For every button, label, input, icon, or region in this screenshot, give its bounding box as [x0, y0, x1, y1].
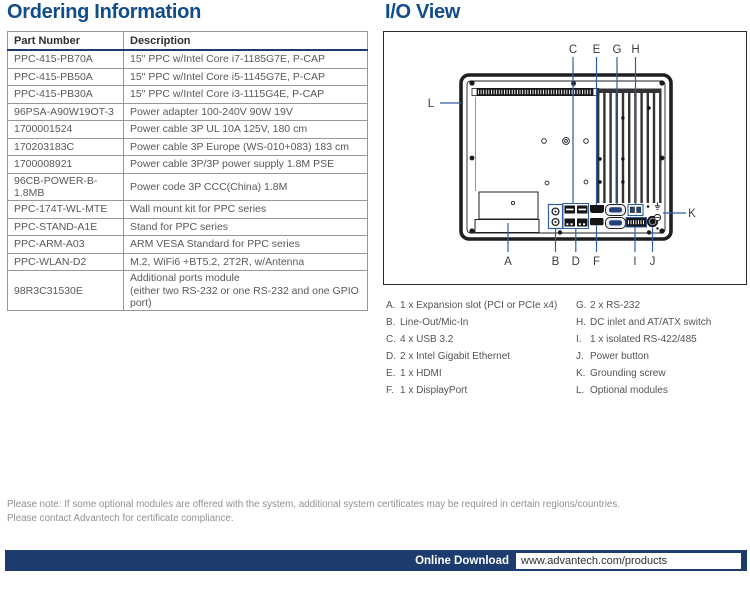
table-row: 98R3C31530EAdditional ports module (eith…	[8, 271, 368, 311]
part-number-cell: PPC-STAND-A1E	[8, 218, 124, 236]
compliance-note: Please note: If some optional modules ar…	[7, 498, 727, 525]
part-number-cell: PPC-ARM-A03	[8, 236, 124, 254]
rs422-485-port	[626, 218, 647, 228]
legend-item: C.4 x USB 3.2	[386, 331, 571, 348]
description-cell: Power cable 3P Europe (WS-010+083) 183 c…	[124, 138, 368, 156]
callout-letter-e: E	[593, 44, 601, 56]
part-number-cell: 98R3C31530E	[8, 271, 124, 311]
io-legend-right: G.2 x RS-232 H.DC inlet and AT/ATX switc…	[576, 297, 748, 399]
description-cell: 15" PPC w/Intel Core i3-1115G4E, P-CAP	[124, 86, 368, 104]
legend-item: I.1 x isolated RS-422/485	[576, 331, 748, 348]
ordering-information-heading: Ordering Information	[7, 1, 201, 24]
hdmi-port	[590, 205, 604, 213]
description-cell: Power cable 3P/3P power supply 1.8M PSE	[124, 156, 368, 174]
legend-item: H.DC inlet and AT/ATX switch	[576, 314, 748, 331]
legend-item: D.2 x Intel Gigabit Ethernet	[386, 348, 571, 365]
table-row: PPC-STAND-A1EStand for PPC series	[8, 218, 368, 236]
table-row: PPC-ARM-A03ARM VESA Standard for PPC ser…	[8, 236, 368, 254]
part-number-cell: 96CB-POWER-B-1.8MB	[8, 173, 124, 201]
description-cell: Wall mount kit for PPC series	[124, 201, 368, 219]
callout-letter-j: J	[650, 256, 656, 268]
table-header-row: Part Number Description	[8, 32, 368, 51]
part-number-cell: PPC-415-PB50A	[8, 68, 124, 86]
callout-letter-f: F	[593, 256, 600, 268]
col-header-part-number: Part Number	[8, 32, 124, 51]
io-view-heading: I/O View	[385, 1, 460, 24]
note-line-1: Please note: If some optional modules ar…	[7, 498, 727, 512]
legend-item: A.1 x Expansion slot (PCI or PCIe x4)	[386, 297, 571, 314]
note-line-2: Please contact Advantech for certificate…	[7, 512, 727, 526]
description-cell: ARM VESA Standard for PPC series	[124, 236, 368, 254]
part-number-cell: 170203183C	[8, 138, 124, 156]
expansion-slot	[475, 192, 539, 233]
rear-panel-diagram: C E G H A B D F I J L K	[383, 31, 747, 285]
callout-letter-l: L	[428, 98, 435, 110]
displayport-port	[590, 218, 604, 225]
callout-letter-b: B	[552, 256, 560, 268]
callout-letter-d: D	[572, 256, 580, 268]
online-download-label: Online Download	[415, 555, 509, 567]
dc-inlet-atx-switch	[628, 205, 643, 216]
io-view-panel: C E G H A B D F I J L K	[383, 31, 747, 285]
download-url-box[interactable]: www.advantech.com/products	[516, 553, 741, 569]
audio-jacks	[549, 205, 563, 229]
callout-letter-h: H	[631, 44, 639, 56]
table-row: PPC-415-PB30A15" PPC w/Intel Core i3-111…	[8, 86, 368, 104]
callout-letter-k: K	[688, 208, 696, 220]
table-row: PPC-174T-WL-MTEWall mount kit for PPC se…	[8, 201, 368, 219]
legend-item: J.Power button	[576, 348, 748, 365]
description-cell: Stand for PPC series	[124, 218, 368, 236]
description-cell: M.2, WiFi6 +BT5.2, 2T2R, w/Antenna	[124, 253, 368, 271]
legend-item: K.Grounding screw	[576, 365, 748, 382]
table-row: 1700008921Power cable 3P/3P power supply…	[8, 156, 368, 174]
part-number-cell: 96PSA-A90W19OT-3	[8, 103, 124, 121]
io-legend-left: A.1 x Expansion slot (PCI or PCIe x4) B.…	[386, 297, 571, 399]
part-number-cell: PPC-415-PB30A	[8, 86, 124, 104]
part-number-cell: 1700001524	[8, 121, 124, 139]
callout-letter-a: A	[504, 256, 512, 268]
description-cell: Additional ports module (either two RS-2…	[124, 271, 368, 311]
part-number-cell: PPC-WLAN-D2	[8, 253, 124, 271]
table-row: 96PSA-A90W19OT-3Power adapter 100-240V 9…	[8, 103, 368, 121]
callout-letter-g: G	[613, 44, 622, 56]
table-row: PPC-WLAN-D2M.2, WiFi6 +BT5.2, 2T2R, w/An…	[8, 253, 368, 271]
callout-letter-i: I	[633, 256, 636, 268]
description-cell: Power code 3P CCC(China) 1.8M	[124, 173, 368, 201]
description-cell: 15" PPC w/Intel Core i5-1145G7E, P-CAP	[124, 68, 368, 86]
description-cell: Power adapter 100-240V 90W 19V	[124, 103, 368, 121]
usb-ethernet-ports	[563, 204, 589, 229]
online-download-bar: Online Download www.advantech.com/produc…	[5, 550, 747, 571]
description-cell: 15" PPC w/Intel Core i7-1185G7E, P-CAP	[124, 50, 368, 68]
part-number-cell: PPC-174T-WL-MTE	[8, 201, 124, 219]
legend-item: E.1 x HDMI	[386, 365, 571, 382]
table-row: 96CB-POWER-B-1.8MBPower code 3P CCC(Chin…	[8, 173, 368, 201]
callout-letter-c: C	[569, 44, 577, 56]
legend-item: F.1 x DisplayPort	[386, 382, 571, 399]
col-header-description: Description	[124, 32, 368, 51]
legend-item: L.Optional modules	[576, 382, 748, 399]
legend-item: G.2 x RS-232	[576, 297, 748, 314]
legend-item: B.Line-Out/Mic-In	[386, 314, 571, 331]
part-number-cell: PPC-415-PB70A	[8, 50, 124, 68]
table-row: 170203183CPower cable 3P Europe (WS-010+…	[8, 138, 368, 156]
description-cell: Power cable 3P UL 10A 125V, 180 cm	[124, 121, 368, 139]
ordering-table: Part Number Description PPC-415-PB70A15"…	[7, 31, 368, 311]
table-row: 1700001524Power cable 3P UL 10A 125V, 18…	[8, 121, 368, 139]
table-row: PPC-415-PB50A15" PPC w/Intel Core i5-114…	[8, 68, 368, 86]
table-row: PPC-415-PB70A15" PPC w/Intel Core i7-118…	[8, 50, 368, 68]
part-number-cell: 1700008921	[8, 156, 124, 174]
